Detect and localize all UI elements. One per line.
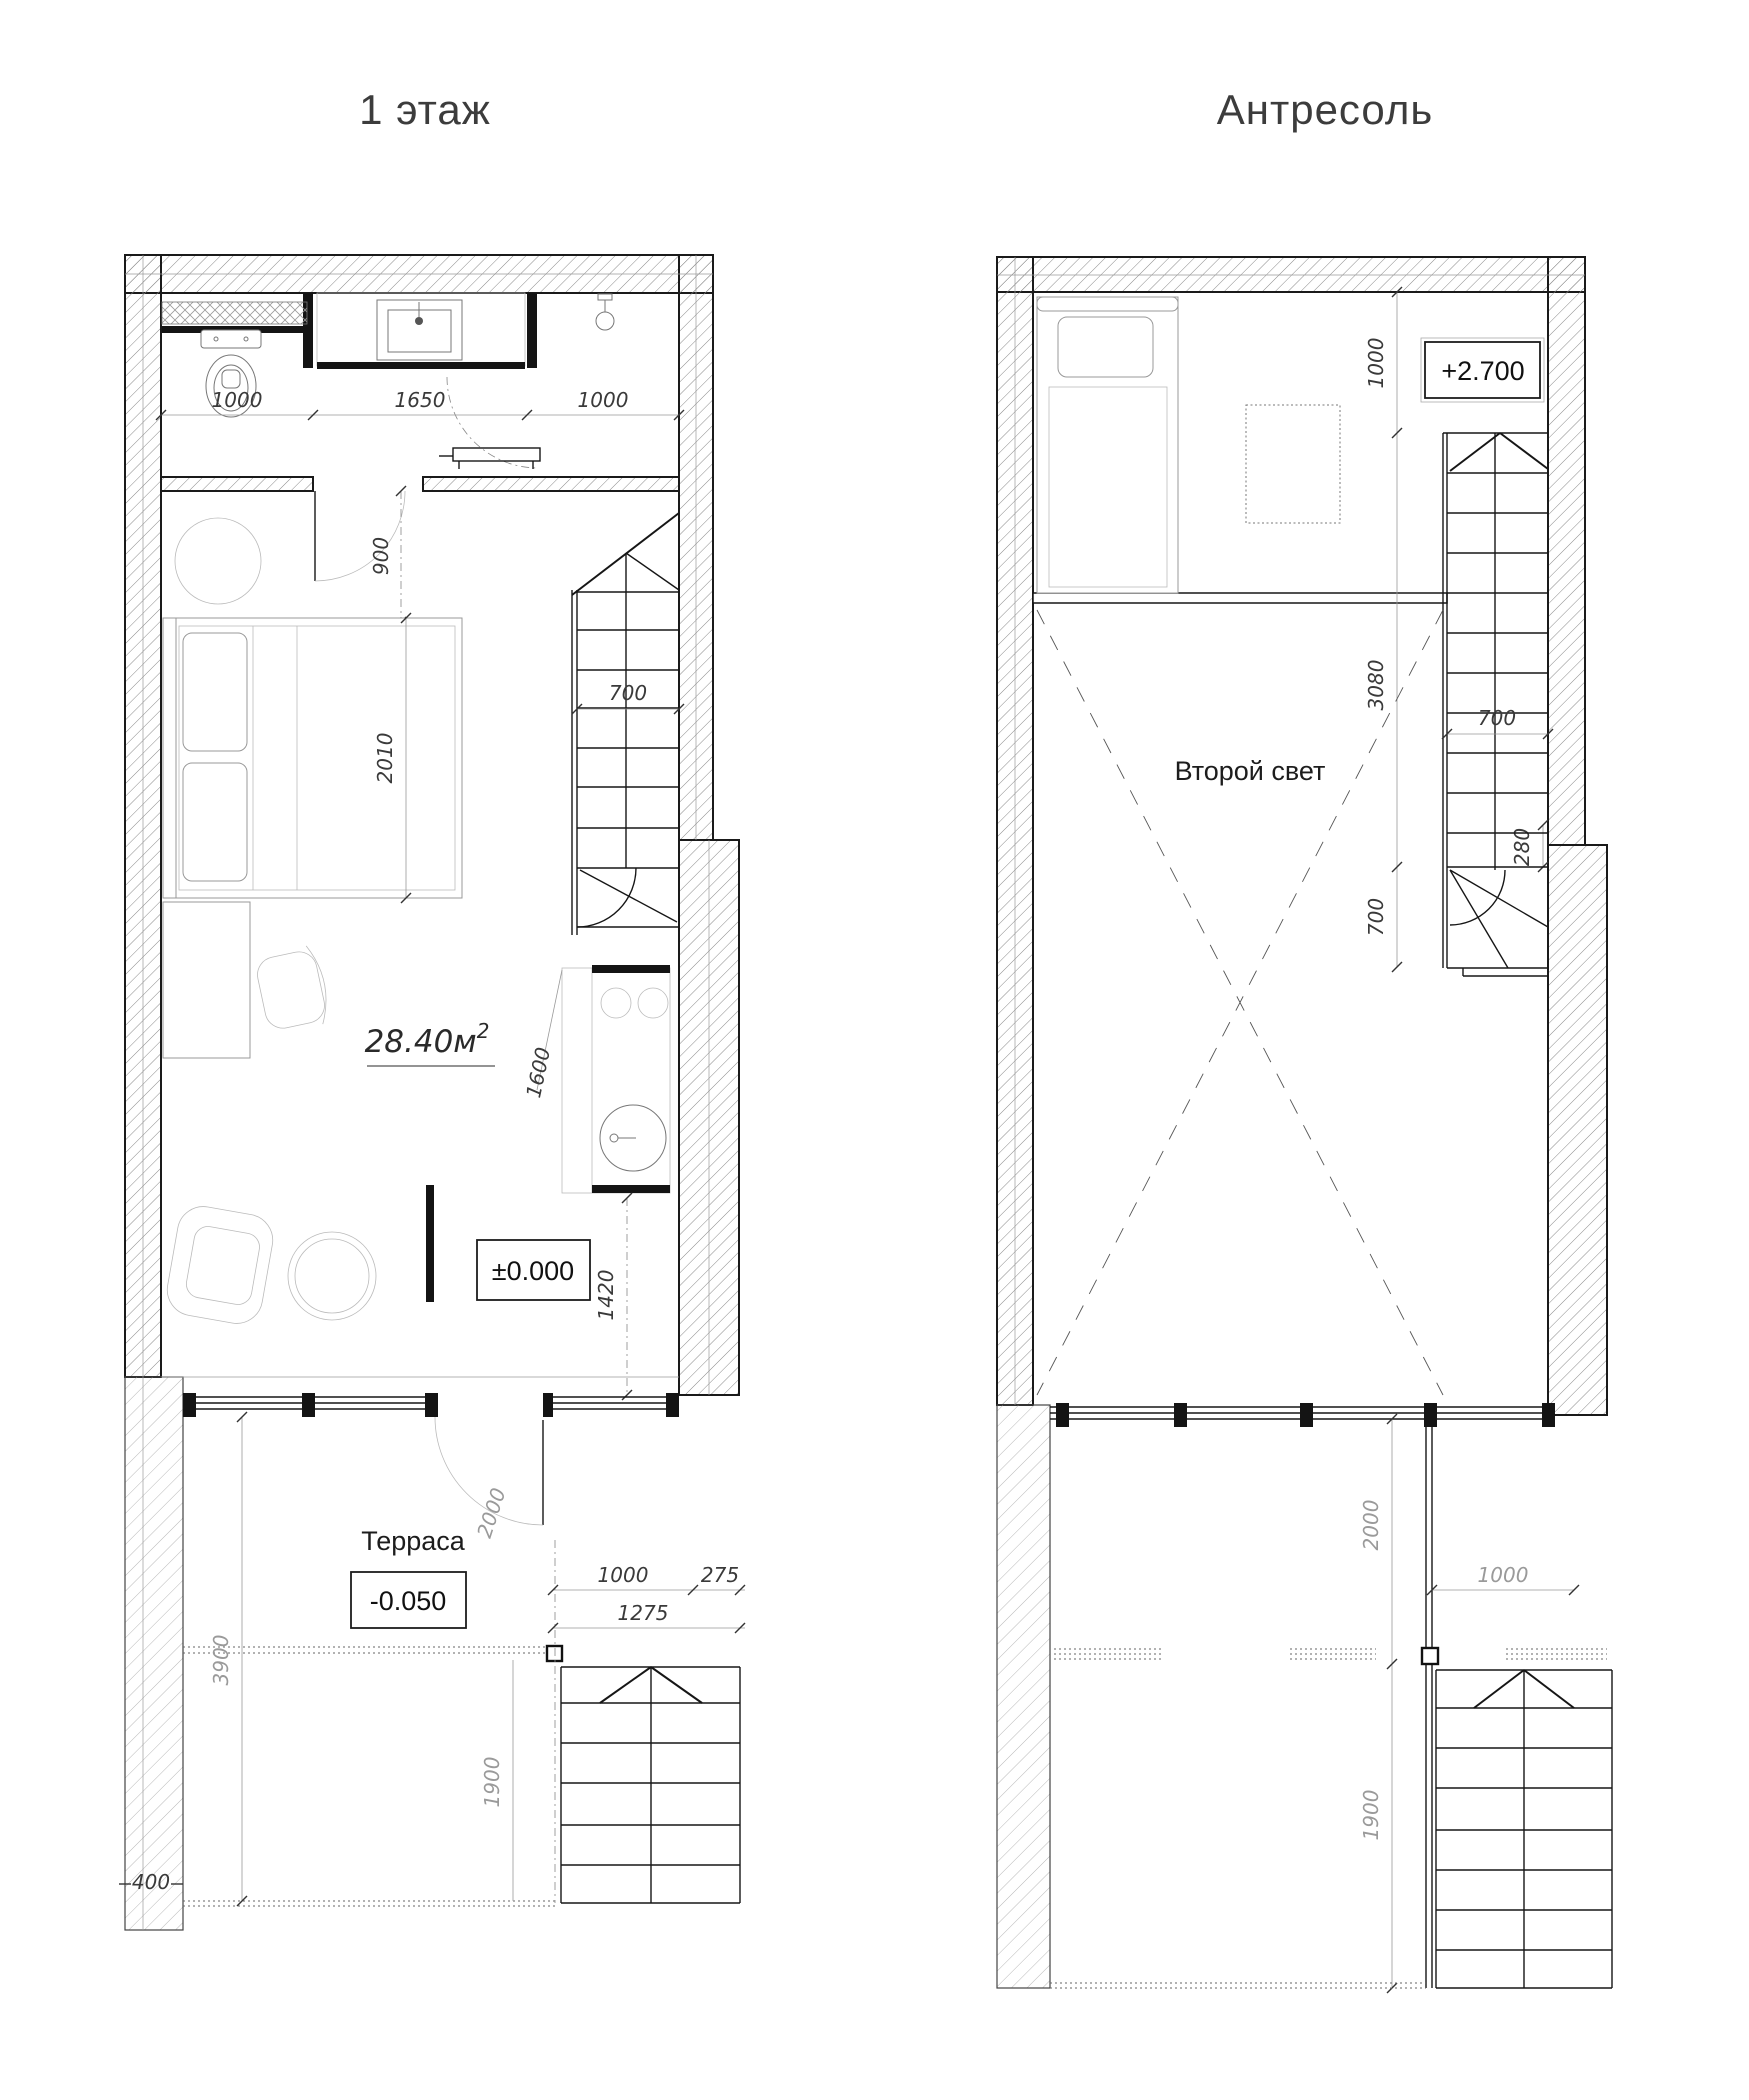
- floorplan-sheet: 1 этаж Антресоль: [0, 0, 1749, 2100]
- dim-terrace-door: 2000: [1359, 1500, 1383, 1551]
- dim-porch-depth: 1900: [1359, 1790, 1383, 1841]
- level-terrace: -0.050: [370, 1586, 447, 1616]
- mezzanine-stair: 700: [1442, 433, 1553, 976]
- dim-terrace-depth: 3900: [209, 1635, 233, 1686]
- glazed-facade: [1050, 1403, 1555, 1427]
- shower-door-swing: [447, 377, 538, 468]
- dim-porch-width: 1000: [1478, 1563, 1529, 1587]
- terrace-label: Терраса: [361, 1526, 466, 1556]
- dim-void-length: 3080: [1364, 660, 1388, 711]
- winder-arc: [577, 868, 636, 927]
- area-label: 28.40м2: [365, 1019, 490, 1060]
- dim-shower-width: 1000: [578, 388, 629, 412]
- mezzanine-level: +2.700: [1421, 338, 1544, 402]
- dim-terrace-door: 2000: [472, 1485, 511, 1541]
- dim-porch-width: 1000: [598, 1563, 649, 1587]
- dim-vanity-width: 1650: [395, 388, 446, 412]
- dim-kitchen-width: 1600: [521, 1045, 555, 1100]
- kitchen-sink: [600, 1105, 666, 1171]
- dim-bath-door: 900: [369, 537, 393, 575]
- glazed-facade: [183, 1393, 679, 1417]
- dim-wall-offset: 400: [132, 1870, 170, 1894]
- burner: [601, 988, 631, 1018]
- floor1-title: 1 этаж: [95, 86, 755, 134]
- bed-zone-partition: [1033, 593, 1447, 603]
- terrace-door: 2000: [435, 1417, 543, 1541]
- level-floor: +2.700: [1441, 356, 1524, 386]
- floor1-terrace: 2000 Терраса -0.050 3900 1900: [161, 1377, 679, 1906]
- double-bed: [163, 618, 462, 898]
- rug: [1246, 405, 1340, 523]
- void-label: Второй свет: [1175, 756, 1326, 786]
- floor1-workzone: [163, 902, 376, 1327]
- burner: [638, 988, 668, 1018]
- shower-head-icon: [596, 294, 614, 330]
- floor1-bath-dims: 1000 1650 1000 900: [156, 388, 684, 627]
- office-chair: [253, 944, 332, 1036]
- dim-wc-width: 1000: [212, 388, 263, 412]
- mezzanine-bed-zone: [1037, 297, 1340, 593]
- dim-stair-width: 700: [1478, 706, 1516, 730]
- vanity-sink: [317, 293, 525, 369]
- floor1-plan-drawing: 1000 1650 1000 900 2010: [95, 190, 755, 1940]
- mezzanine-terrace: 2000 1900 1000: [1050, 1403, 1612, 1993]
- mezzanine-plan-drawing: +2.700 1000 3080 700 280: [995, 215, 1655, 2005]
- railing-segments: [1054, 1648, 1607, 1664]
- single-bed: [1037, 297, 1178, 593]
- desk: [163, 902, 250, 1058]
- dim-porch-total: 1275: [618, 1601, 669, 1625]
- exterior-stair: [1436, 1670, 1612, 1988]
- dim-bed-length: 2010: [373, 733, 397, 784]
- dim-hall-depth: 1420: [594, 1270, 618, 1321]
- side-table: [288, 1232, 376, 1320]
- dim-stair-width: 700: [609, 681, 647, 705]
- armchair: [163, 1203, 277, 1328]
- terrace-post: [1422, 1648, 1438, 1664]
- exterior-stair: [561, 1667, 740, 1903]
- floor1-stair: 700: [572, 513, 684, 935]
- shelf-band: [162, 302, 307, 324]
- mezzanine-title: Антресоль: [995, 86, 1655, 134]
- dim-porch-depth: 1900: [480, 1757, 504, 1808]
- pouf: [175, 518, 261, 604]
- terrace-post: [547, 1646, 562, 1661]
- floor1-kitchen: 1600: [521, 965, 670, 1193]
- towel-radiator: [439, 448, 540, 469]
- void-area: Второй свет: [1037, 610, 1443, 1395]
- dim-winder: 700: [1364, 898, 1388, 936]
- floor1-bedroom: 2010: [163, 518, 462, 903]
- dim-landing: 1000: [1364, 338, 1388, 389]
- dim-porch-edge: 275: [701, 1563, 739, 1587]
- level-zero: ±0.000: [492, 1256, 574, 1286]
